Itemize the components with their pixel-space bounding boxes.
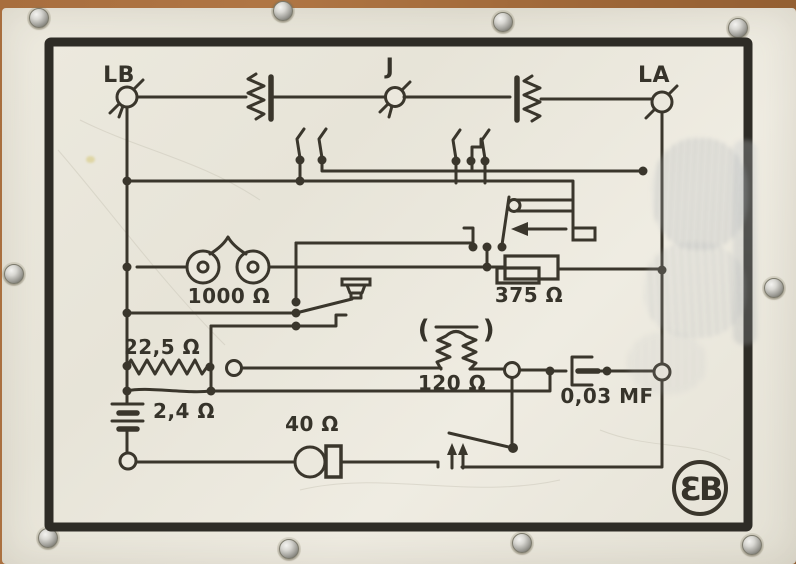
yellow-spot — [86, 156, 95, 163]
resistor-22-5ohm: 22,5 Ω — [123, 335, 442, 376]
label-la: LA — [638, 63, 670, 88]
bus-lower-dot — [207, 387, 216, 396]
label-paren-left: ( — [418, 315, 430, 345]
plate-scratches — [58, 120, 730, 490]
rail-left-dot1 — [123, 177, 132, 186]
induction-coil-120ohm: ( ) 120 Ω — [418, 315, 505, 395]
capacitor-0-03mf: 0,03 MF — [505, 357, 671, 408]
terminal-j: J — [380, 55, 410, 117]
contact-pair-left — [296, 129, 327, 186]
ringer-1000ohm: 1000 Ω — [137, 237, 270, 308]
rail-left-dot3 — [123, 309, 132, 318]
pushbutton-contacts — [211, 315, 346, 391]
label-40: 40 Ω — [285, 412, 339, 436]
contact-pair-right — [452, 130, 490, 183]
label-paren-right: ) — [483, 315, 495, 345]
label-22-5: 22,5 Ω — [124, 335, 200, 359]
photo: LB J LA — [0, 0, 796, 564]
resistor-375ohm: 375 Ω — [269, 256, 667, 307]
label-0-03mf: 0,03 MF — [560, 384, 653, 408]
frame-border — [49, 42, 748, 527]
arrow-left-icon — [511, 222, 566, 236]
label-lb: LB — [103, 63, 135, 88]
battery-2-4ohm: 2,4 Ω — [112, 391, 215, 469]
label-1000: 1000 Ω — [188, 284, 271, 308]
logo-eb-text: ƐB — [680, 470, 722, 508]
terminal-la: LA — [638, 63, 677, 118]
hook-lever — [508, 200, 595, 241]
bus-lower — [127, 371, 550, 392]
bus-b-end-dot — [639, 167, 648, 176]
bus-a — [127, 181, 573, 200]
label-j: J — [384, 55, 395, 80]
logo-eb: ƐB — [674, 462, 726, 514]
terminal-lb: LB — [103, 63, 143, 117]
schematic-svg: LB J LA — [0, 0, 796, 564]
label-2-4: 2,4 Ω — [153, 399, 215, 423]
arrester-left — [248, 74, 271, 119]
arrester-right — [517, 76, 540, 121]
label-375: 375 Ω — [495, 283, 563, 307]
rail-left-dot2 — [123, 263, 132, 272]
